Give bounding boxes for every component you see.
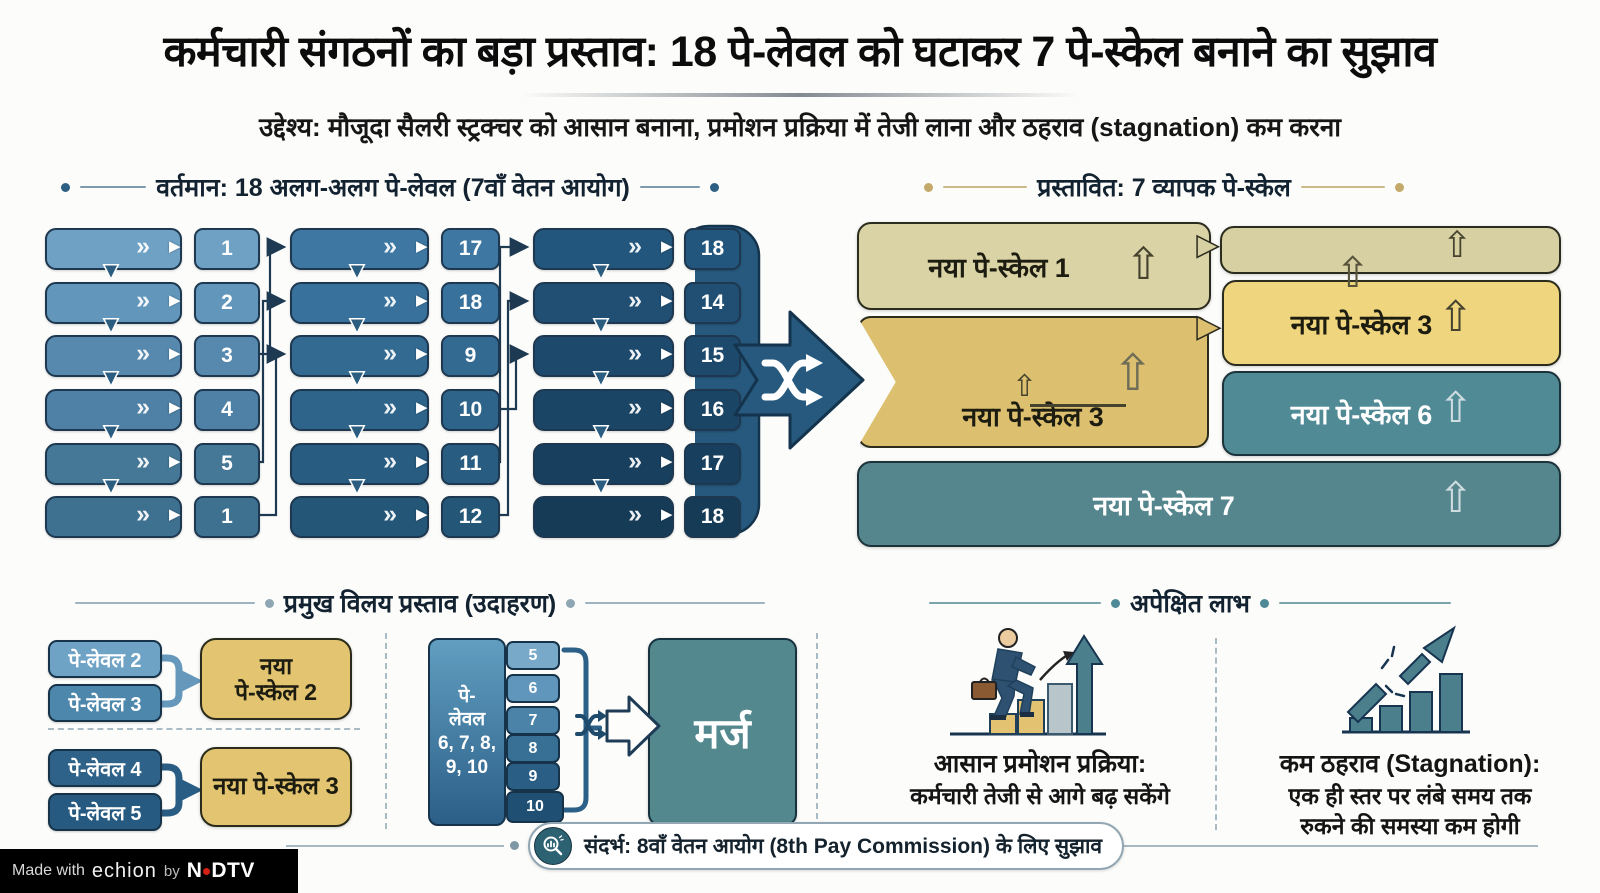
up-arrow-icon: ⇧ — [1125, 243, 1162, 287]
arrow-link-line — [1030, 404, 1126, 407]
up-arrow-icon: ⇧ — [1012, 372, 1037, 402]
promotion-icon — [938, 624, 1113, 742]
level-number: 3 — [194, 335, 260, 377]
pay-scale-top-right-box — [1220, 226, 1561, 274]
infographic-canvas: कर्मचारी संगठनों का बड़ा प्रस्ताव: 18 पे… — [0, 0, 1600, 893]
right-arrow-icon: ▶ — [1197, 312, 1220, 342]
pay-level-row: »▶10 — [290, 389, 500, 427]
down-arrow-icon: ▼ — [93, 418, 129, 447]
level-chip: 5 — [506, 641, 560, 670]
flow-arrow-icon: ▶ — [416, 452, 428, 470]
level-number: 1 — [194, 496, 260, 538]
ndtv-dtv: DTV — [211, 859, 255, 883]
level-chip: 8 — [506, 734, 560, 763]
level-number: 11 — [441, 443, 500, 485]
benefit-2-title: कम ठहराव (Stagnation): — [1245, 746, 1575, 780]
chevron-icon: » — [628, 447, 640, 476]
chevron-icon: » — [383, 232, 395, 261]
pay-level-row: »▶1 — [45, 496, 260, 534]
target-label-line2: पे-स्केल 2 — [235, 679, 317, 705]
merge-target-box: मर्ज — [648, 638, 797, 826]
benefit-1-line: कर्मचारी तेजी से आगे बढ़ सकेंगे — [860, 779, 1220, 811]
chevron-icon: » — [383, 339, 395, 368]
level-number: 2 — [194, 282, 260, 324]
pay-level-row: »▶18 — [290, 282, 500, 320]
up-arrow-icon: ⇧ — [1112, 348, 1154, 398]
flow-arrow-icon: ▶ — [169, 291, 181, 309]
ndtv-n: N — [187, 859, 203, 883]
benefit-1-title: आसान प्रमोशन प्रक्रिया: — [880, 746, 1200, 780]
pay-scale-3-right-label: नया पे-स्केल 3 — [1291, 305, 1433, 342]
up-arrow-icon: ⇧ — [1438, 387, 1473, 429]
chevron-icon: » — [628, 232, 640, 261]
down-arrow-icon: ▼ — [339, 257, 375, 286]
label-line: 6, 7, 8, — [438, 732, 496, 756]
flow-arrow-icon: ▶ — [661, 291, 673, 309]
label-line: 9, 10 — [446, 756, 488, 780]
flow-arrow-icon: ▶ — [661, 505, 673, 523]
down-arrow-icon: ▼ — [583, 311, 619, 340]
magnifier-disc — [534, 827, 572, 865]
chevron-icon: » — [383, 286, 395, 315]
level-number: 1 — [194, 228, 260, 270]
chevron-icon: » — [628, 393, 640, 422]
shuffle-merge-arrow — [575, 690, 663, 762]
benefit-2-line: एक ही स्तर पर लंबे समय तक — [1235, 779, 1585, 811]
chevron-icon: » — [628, 286, 640, 315]
heading-line — [929, 602, 1101, 605]
down-arrow-icon: ▼ — [93, 257, 129, 286]
flow-arrow-icon: ▶ — [169, 344, 181, 362]
vertical-divider — [1215, 638, 1217, 830]
proposed-section-heading: प्रस्तावित: 7 व्यापक पे-स्केल — [828, 170, 1500, 204]
pay-level-4-chip: पे-लेवल 4 — [48, 749, 162, 787]
down-arrow-icon: ▼ — [339, 311, 375, 340]
shuffle-icon — [577, 716, 599, 734]
outline-arrow — [607, 697, 659, 755]
pay-level-row: »▶17 — [290, 228, 500, 266]
heading-line — [585, 602, 765, 605]
magnifier-icon — [541, 834, 565, 858]
footer-dot — [510, 841, 519, 850]
footer-line — [286, 845, 504, 847]
up-arrow-icon: ⇧ — [1438, 477, 1473, 519]
chevron-icon: » — [136, 286, 148, 315]
pay-level-row: »▶5 — [45, 443, 260, 481]
pay-level-row: »▶12 — [290, 496, 500, 534]
chevron-icon: » — [383, 393, 395, 422]
level-number: 10 — [441, 389, 500, 431]
level-box: » — [533, 496, 674, 538]
label-line: लेवल — [449, 708, 485, 732]
heading-line — [1301, 186, 1385, 189]
chevron-icon: » — [628, 500, 640, 529]
credit-made-with: Made with — [12, 862, 85, 880]
up-arrow-icon: ⇧ — [1442, 227, 1472, 263]
label-line: पे- — [458, 685, 475, 709]
pay-scale-3-right-box: नया पे-स्केल 3 — [1222, 280, 1561, 366]
flow-arrow-icon: ▶ — [169, 237, 181, 255]
pay-level-2-chip: पे-लेवल 2 — [48, 640, 162, 678]
flow-arrow-icon: ▶ — [661, 452, 673, 470]
pay-level-5-chip: पे-लेवल 5 — [48, 793, 162, 831]
down-arrow-icon: ▼ — [583, 418, 619, 447]
new-pay-scale-2-box: नया पे-स्केल 2 — [200, 638, 352, 720]
down-arrow-icon: ▼ — [339, 364, 375, 393]
merge-target-label: मर्ज — [694, 704, 750, 761]
level-chip: 9 — [506, 762, 560, 791]
benefits-section-heading: अपेक्षित लाभ — [860, 586, 1520, 620]
heading-line — [943, 186, 1027, 189]
merge-big-arrow — [695, 218, 880, 543]
flow-arrow-icon: ▶ — [661, 398, 673, 416]
down-arrow-icon: ▼ — [583, 364, 619, 393]
level-chip: 7 — [506, 706, 560, 735]
benefit-2-line: रुकने की समस्या कम होगी — [1235, 809, 1585, 841]
target-label: नया पे-स्केल 3 — [213, 773, 339, 801]
heading-line — [75, 602, 255, 605]
proposed-heading-text: प्रस्तावित: 7 व्यापक पे-स्केल — [1037, 170, 1291, 204]
chevron-icon: » — [383, 500, 395, 529]
level-number: 4 — [194, 389, 260, 431]
benefits-heading-text: अपेक्षित लाभ — [1130, 586, 1250, 620]
heading-dot — [924, 183, 933, 192]
up-arrow-icon: ⇧ — [1438, 296, 1473, 338]
footer-line — [1070, 845, 1538, 847]
down-arrow-icon: ▼ — [93, 364, 129, 393]
pay-level-row: »▶9 — [290, 335, 500, 373]
right-arrow-icon: ▶ — [1197, 231, 1219, 259]
reference-pill: संदर्भ: 8वाँ वेतन आयोग (8th Pay Commissi… — [528, 822, 1124, 870]
chevron-icon: » — [136, 447, 148, 476]
pay-scale-6-box: नया पे-स्केल 6 — [1222, 371, 1561, 456]
pay-level-row: »▶11 — [290, 443, 500, 481]
level-number: 5 — [194, 443, 260, 485]
flow-arrow-icon: ▶ — [416, 505, 428, 523]
target-label-line1: नया — [260, 653, 292, 679]
chevron-icon: » — [628, 339, 640, 368]
level-box: » — [290, 496, 429, 538]
heading-line — [1279, 602, 1451, 605]
down-arrow-icon: ▼ — [339, 472, 375, 501]
pay-scale-6-label: नया पे-स्केल 6 — [1291, 395, 1433, 432]
chevron-icon: » — [136, 393, 148, 422]
down-arrow-icon: ▼ — [93, 472, 129, 501]
down-arrow-icon: ▼ — [93, 311, 129, 340]
level-number: 12 — [441, 496, 500, 538]
new-pay-scale-3-box: नया पे-स्केल 3 — [200, 747, 352, 827]
merge-bracket-arrow — [155, 642, 205, 722]
heading-dot — [1111, 599, 1120, 608]
chevron-icon: » — [136, 339, 148, 368]
level-box: » — [45, 496, 182, 538]
merge-bracket-arrow — [155, 751, 205, 831]
flow-arrow-icon: ▶ — [169, 505, 181, 523]
echion-logo: echion — [92, 860, 157, 883]
credit-bar: Made with echion by N DTV — [0, 849, 298, 893]
ndtv-red-dot-icon — [203, 868, 210, 875]
pay-scale-7-label: नया पे-स्केल 7 — [1093, 486, 1235, 523]
chevron-icon: » — [136, 232, 148, 261]
flow-arrow-icon: ▶ — [416, 291, 428, 309]
level-number: 9 — [441, 335, 500, 377]
pay-level-3-chip: पे-लेवल 3 — [48, 684, 162, 722]
chevron-icon: » — [383, 447, 395, 476]
flow-arrow-icon: ▶ — [416, 237, 428, 255]
flow-arrow-icon: ▶ — [661, 237, 673, 255]
pay-level-row: »▶2 — [45, 282, 260, 320]
pay-level-row: »▶3 — [45, 335, 260, 373]
flow-arrow-icon: ▶ — [416, 398, 428, 416]
up-arrow-icon: ⇧ — [1335, 252, 1370, 294]
pay-level-row: »▶1 — [45, 228, 260, 266]
flow-arrow-icon: ▶ — [661, 344, 673, 362]
down-arrow-icon: ▼ — [583, 472, 619, 501]
credit-by: by — [164, 863, 180, 880]
stagnation-icon — [1328, 618, 1483, 740]
level-number: 17 — [441, 228, 500, 270]
ndtv-logo: N DTV — [187, 859, 255, 883]
flow-arrow-icon: ▶ — [169, 452, 181, 470]
example-divider — [48, 728, 360, 730]
level-chip: 6 — [506, 674, 560, 703]
flow-arrow-icon: ▶ — [169, 398, 181, 416]
pay-scale-1-label: नया पे-स्केल 1 — [928, 248, 1070, 285]
heading-dot — [1260, 599, 1269, 608]
chevron-icon: » — [136, 500, 148, 529]
heading-dot — [1395, 183, 1404, 192]
vertical-divider — [385, 633, 387, 829]
down-arrow-icon: ▼ — [339, 418, 375, 447]
vertical-divider — [816, 633, 818, 829]
reference-text: संदर्भ: 8वाँ वेतन आयोग (8th Pay Commissi… — [584, 832, 1102, 860]
level-number: 18 — [441, 282, 500, 324]
down-arrow-icon: ▼ — [583, 257, 619, 286]
flow-arrow-icon: ▶ — [416, 344, 428, 362]
pay-level-row: »▶4 — [45, 389, 260, 427]
pay-levels-6-10-box: पे- लेवल 6, 7, 8, 9, 10 — [428, 638, 506, 826]
level-chip: 10 — [506, 791, 564, 823]
